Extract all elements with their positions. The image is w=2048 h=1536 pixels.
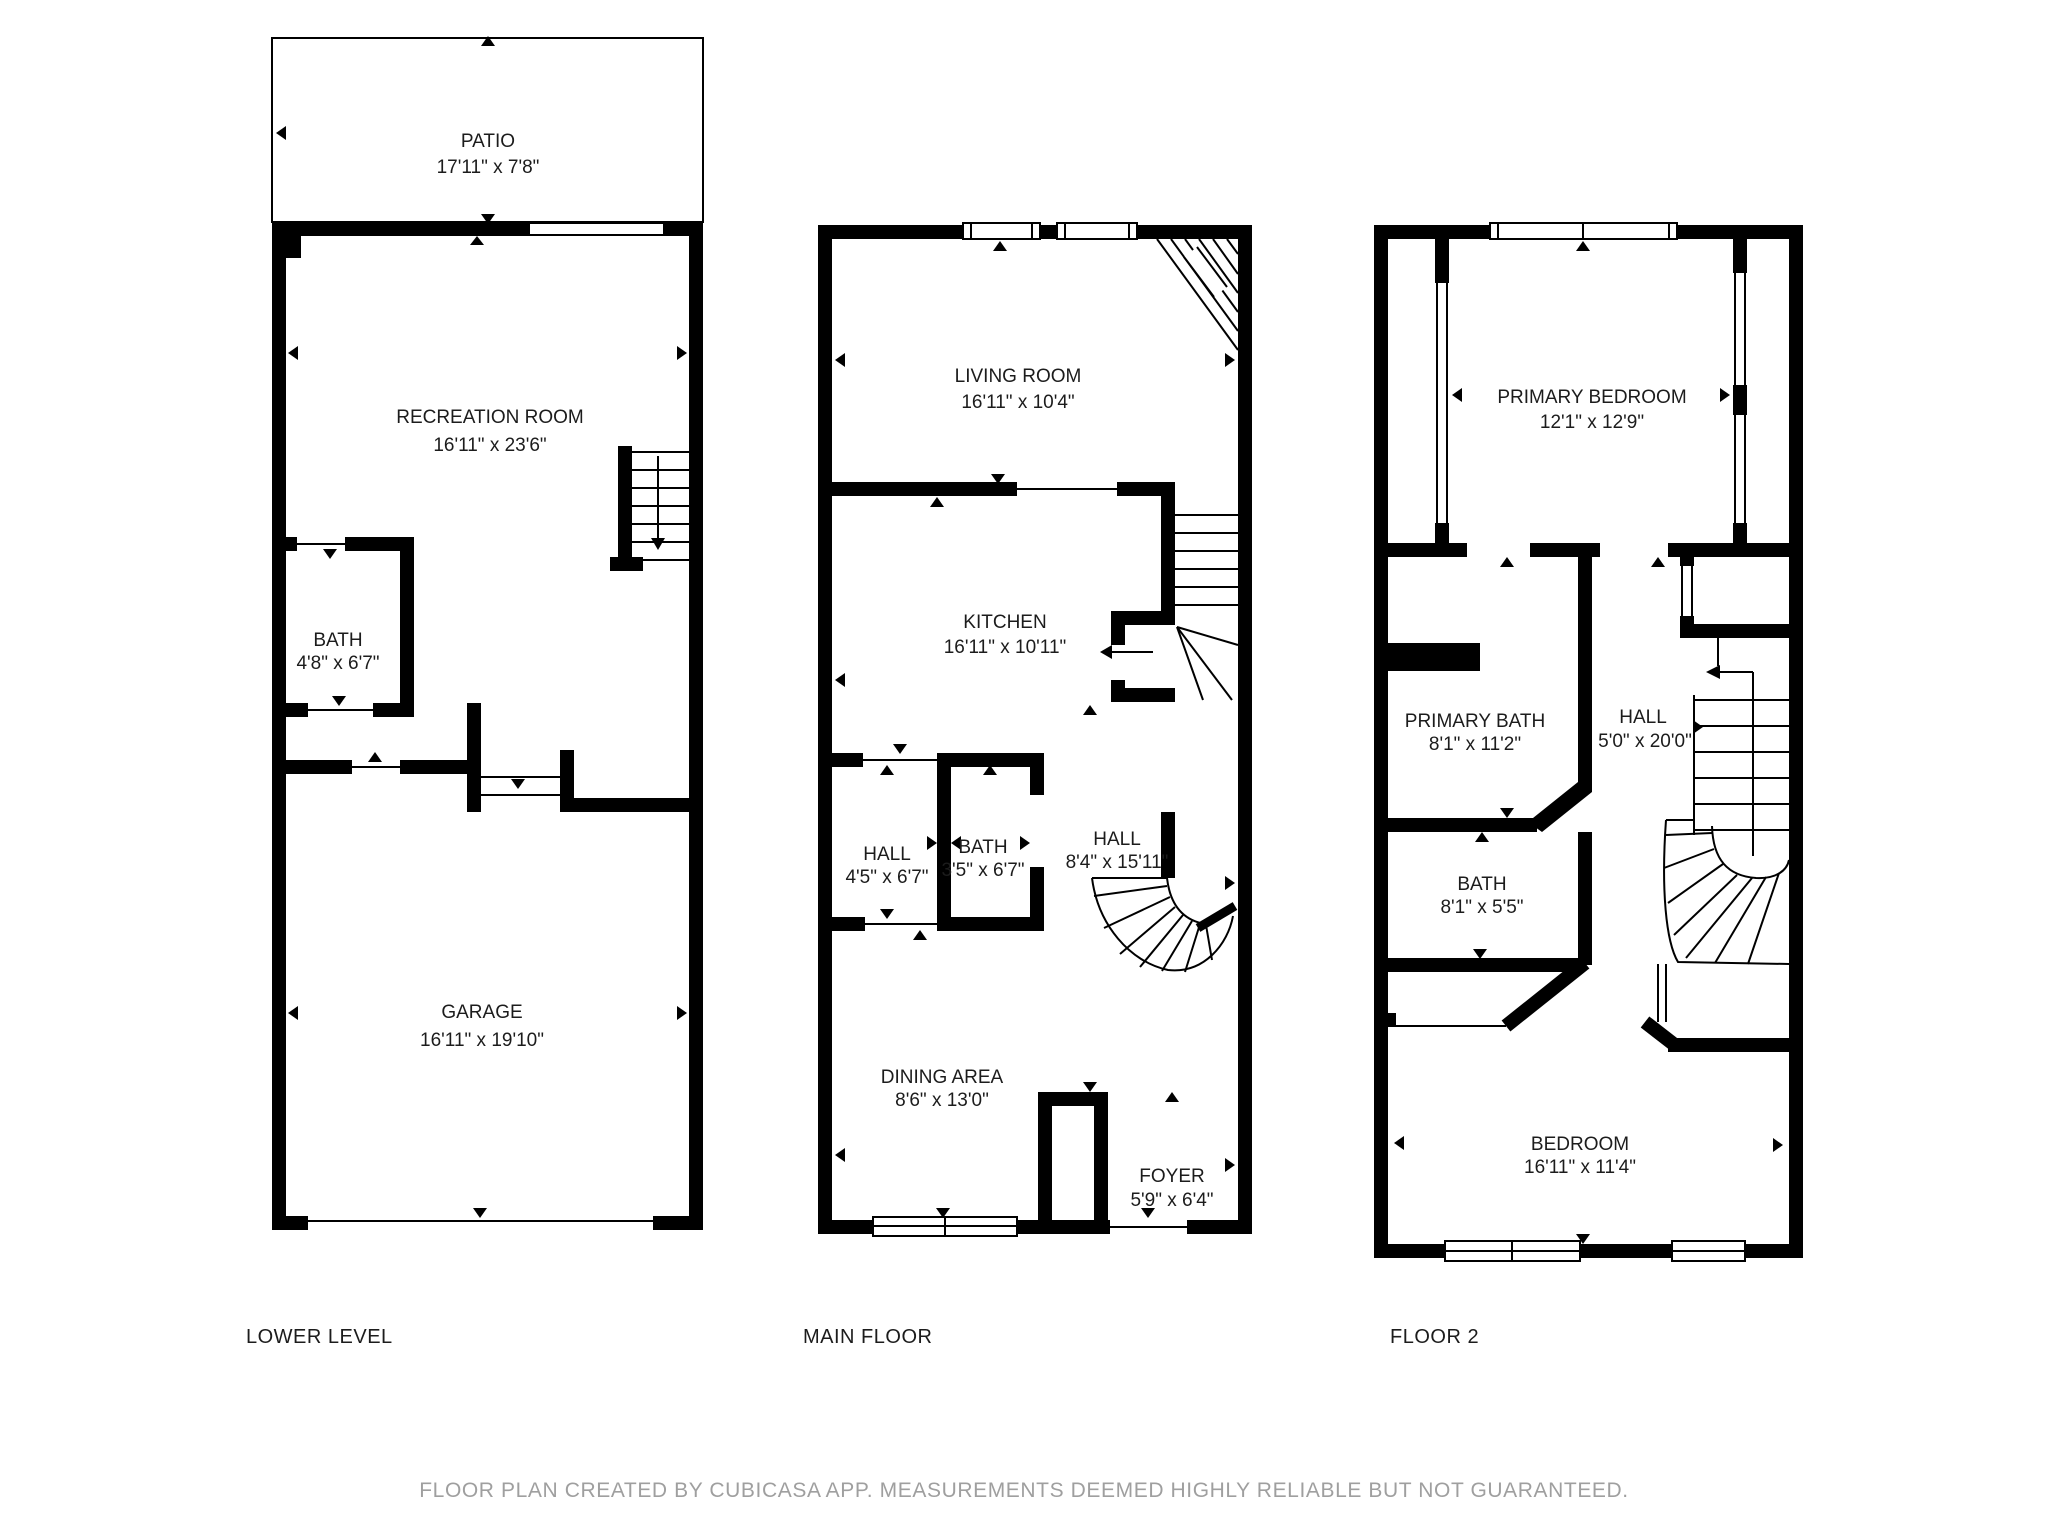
room-dims-garage: 16'11" x 19'10" bbox=[420, 1030, 544, 1051]
footer-disclaimer: FLOOR PLAN CREATED BY CUBICASA APP. MEAS… bbox=[419, 1479, 1629, 1502]
main-floor-plan: LIVING ROOM 16'11" x 10'4" KITCHEN 16'11… bbox=[803, 223, 1252, 1348]
room-dims-kitchen: 16'11" x 10'11" bbox=[944, 637, 1067, 658]
room-label-floor2-bath: BATH bbox=[1457, 874, 1506, 895]
room-dims-bedroom: 16'11" x 11'4" bbox=[1524, 1157, 1636, 1178]
lower-level-plan: PATIO 17'11" x 7'8" RECREATION ROOM 16'1… bbox=[246, 36, 703, 1348]
room-label-foyer: FOYER bbox=[1139, 1166, 1204, 1187]
patio-outline bbox=[272, 38, 703, 222]
floor-plan-canvas: PATIO 17'11" x 7'8" RECREATION ROOM 16'1… bbox=[0, 0, 2048, 1536]
room-dims-main-bath: 3'5" x 6'7" bbox=[941, 860, 1024, 881]
room-label-patio: PATIO bbox=[461, 131, 515, 152]
room-label-living-room: LIVING ROOM bbox=[955, 366, 1082, 387]
staircase-down bbox=[632, 452, 689, 560]
room-label-primary-bedroom: PRIMARY BEDROOM bbox=[1497, 387, 1686, 408]
room-dims-main-hall-large: 8'4" x 15'11" bbox=[1066, 852, 1169, 873]
room-label-garage: GARAGE bbox=[441, 1002, 522, 1023]
floor-plan-page: PATIO 17'11" x 7'8" RECREATION ROOM 16'1… bbox=[0, 0, 2048, 1536]
room-dims-primary-bedroom: 12'1" x 12'9" bbox=[1540, 412, 1644, 433]
floor-title-lower-level: LOWER LEVEL bbox=[246, 1326, 393, 1348]
room-label-primary-bath: PRIMARY BATH bbox=[1405, 711, 1545, 732]
staircase-up bbox=[1658, 638, 1789, 1022]
room-dims-patio: 17'11" x 7'8" bbox=[437, 157, 540, 178]
room-dims-floor2-hall: 5'0" x 20'0" bbox=[1598, 731, 1692, 752]
room-dims-main-hall-small: 4'5" x 6'7" bbox=[845, 867, 928, 888]
room-dims-dining-area: 8'6" x 13'0" bbox=[895, 1090, 989, 1111]
room-label-bedroom: BEDROOM bbox=[1531, 1134, 1629, 1155]
walls bbox=[272, 222, 703, 1230]
stair-cut-hatch bbox=[1157, 239, 1238, 350]
room-label-main-bath: BATH bbox=[958, 837, 1007, 858]
room-label-main-hall-large: HALL bbox=[1093, 829, 1141, 850]
room-dims-floor2-bath: 8'1" x 5'5" bbox=[1440, 897, 1523, 918]
staircase-curved bbox=[1092, 878, 1235, 972]
room-label-recreation-room: RECREATION ROOM bbox=[396, 407, 584, 428]
room-dims-living-room: 16'11" x 10'4" bbox=[961, 392, 1074, 413]
room-dims-recreation-room: 16'11" x 23'6" bbox=[433, 435, 546, 456]
room-label-floor2-hall: HALL bbox=[1619, 707, 1667, 728]
room-dims-primary-bath: 8'1" x 11'2" bbox=[1429, 734, 1521, 755]
room-label-lower-bath: BATH bbox=[313, 630, 362, 651]
room-label-dining-area: DINING AREA bbox=[881, 1067, 1004, 1088]
room-label-main-hall-small: HALL bbox=[863, 844, 911, 865]
floor-title-floor-2: FLOOR 2 bbox=[1390, 1326, 1479, 1348]
floor-title-main-floor: MAIN FLOOR bbox=[803, 1326, 932, 1348]
room-label-kitchen: KITCHEN bbox=[963, 612, 1046, 633]
room-dims-foyer: 5'9" x 6'4" bbox=[1130, 1190, 1213, 1211]
floor-2-plan: PRIMARY BEDROOM 12'1" x 12'9" PRIMARY BA… bbox=[1374, 223, 1803, 1348]
room-dims-lower-bath: 4'8" x 6'7" bbox=[296, 653, 379, 674]
